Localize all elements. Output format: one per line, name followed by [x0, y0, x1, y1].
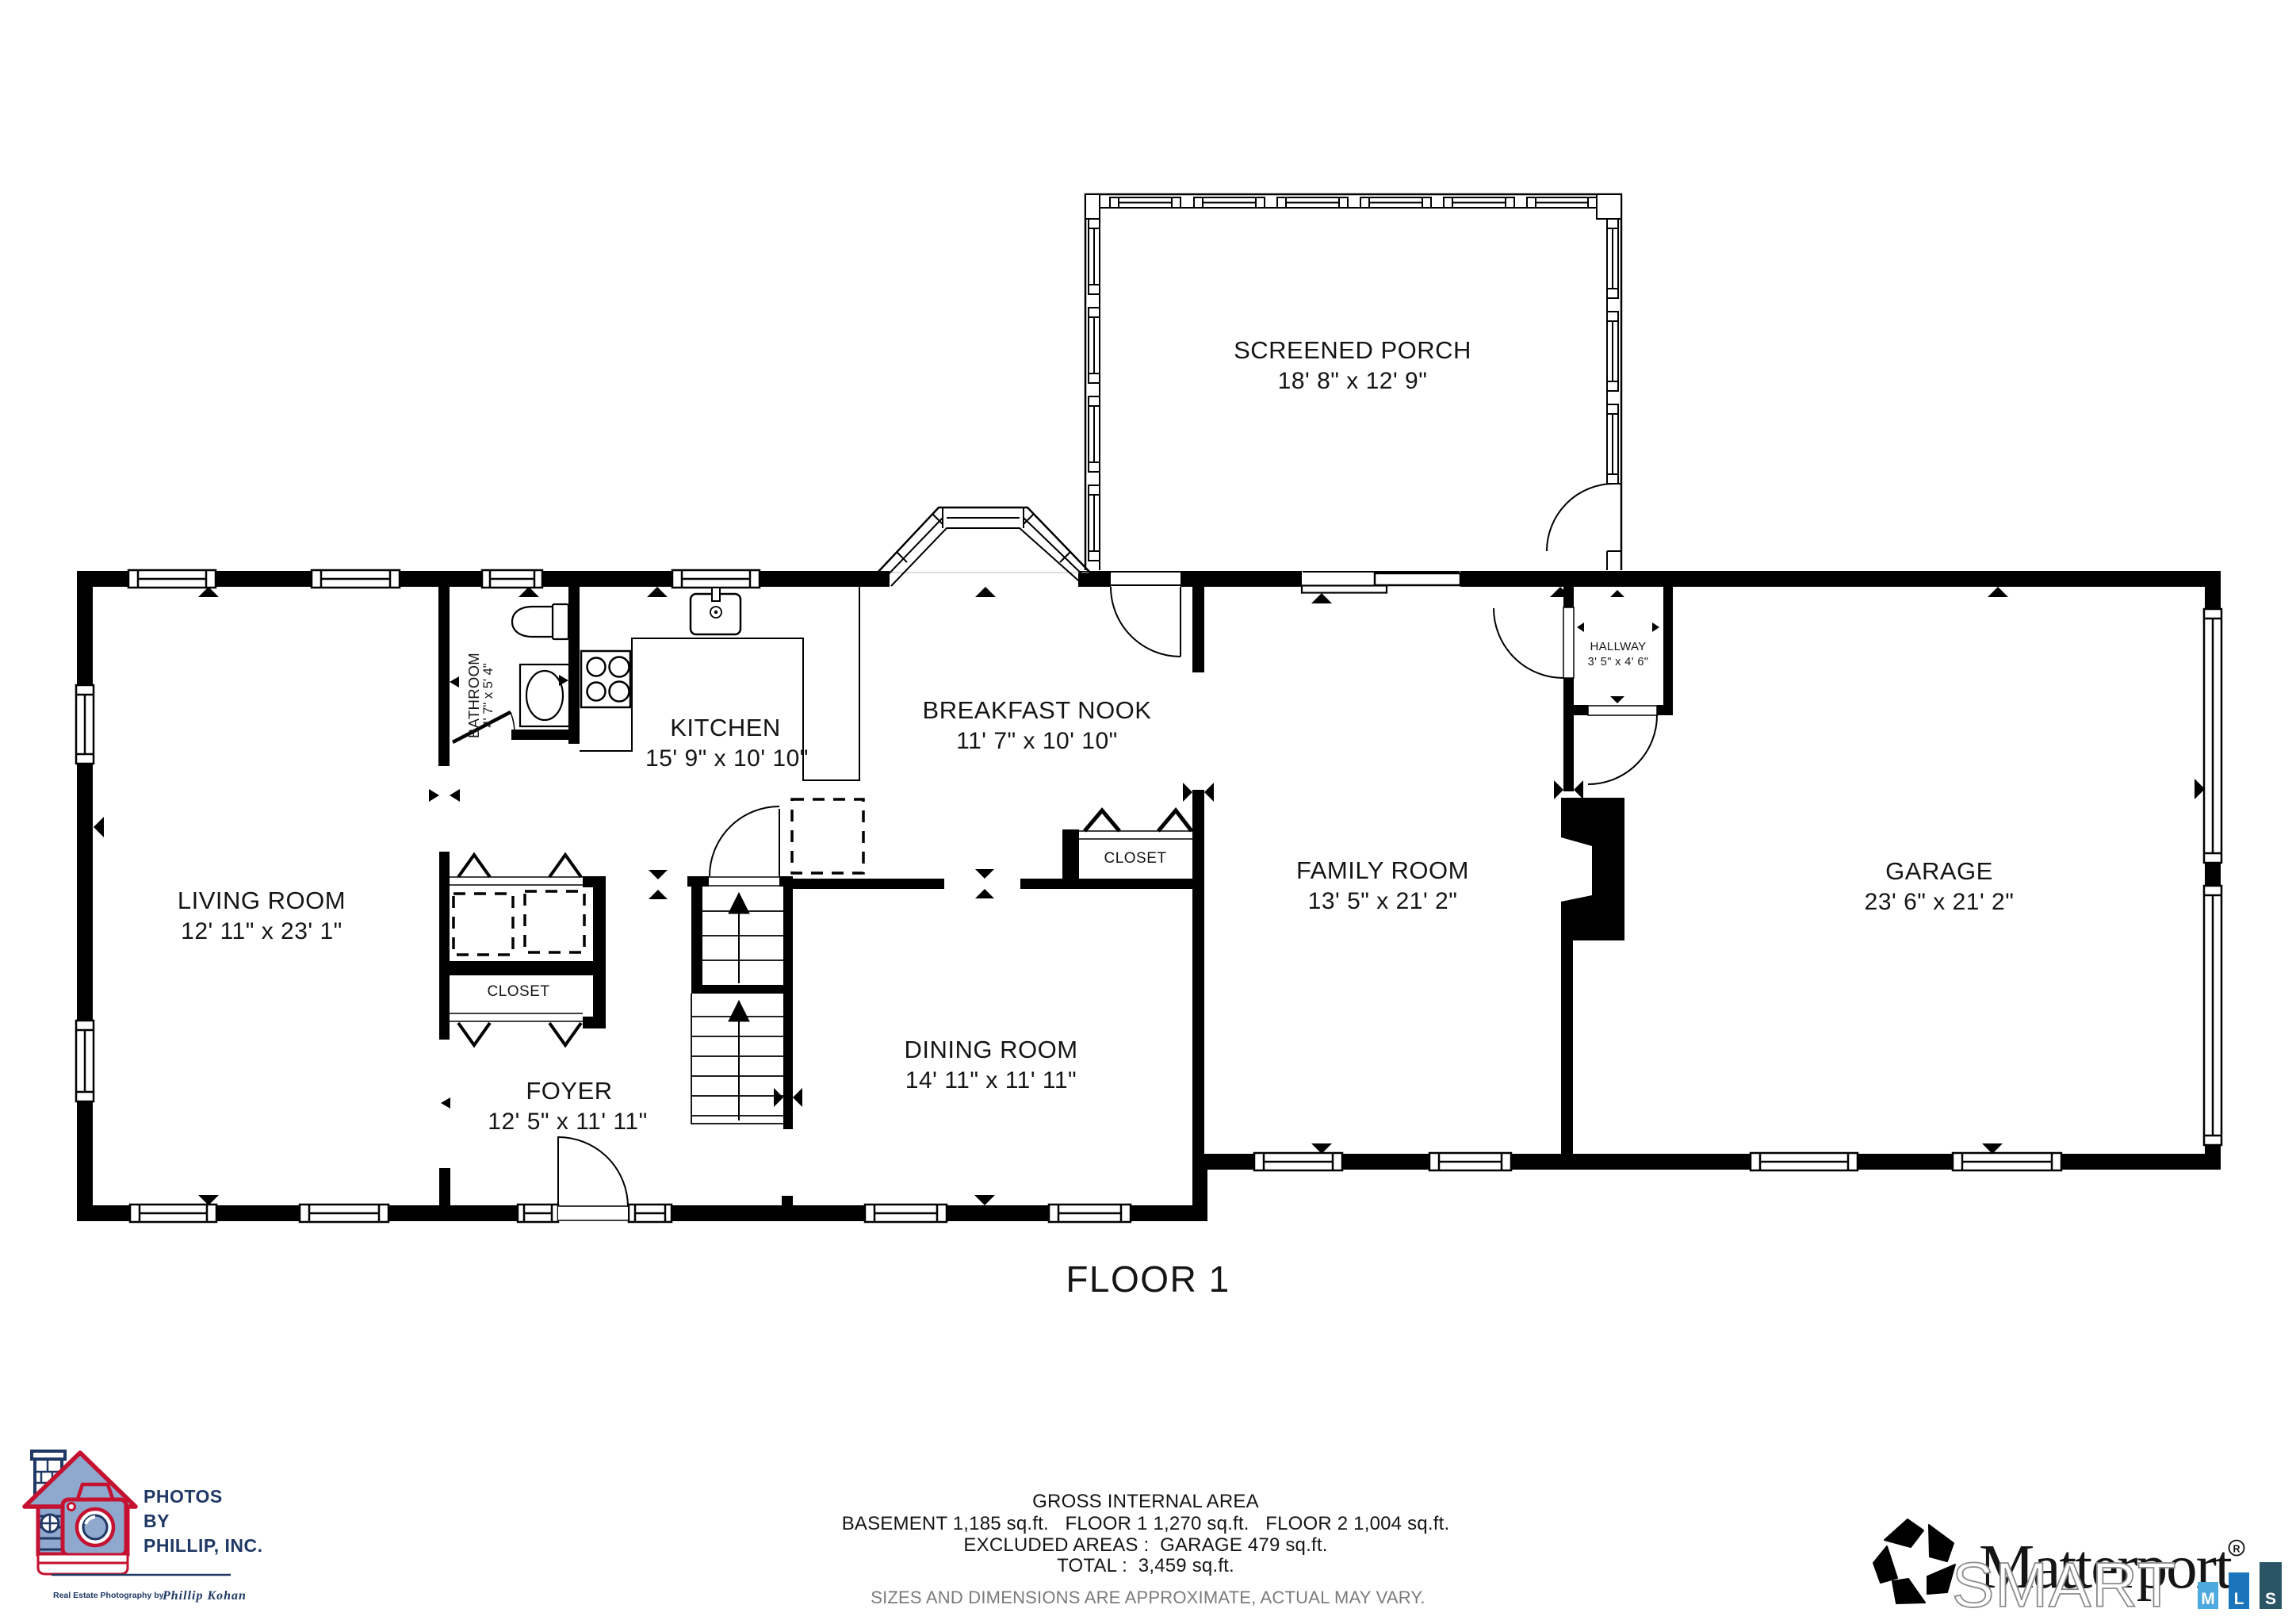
svg-text:4' 7" x 5' 4": 4' 7" x 5' 4": [481, 663, 496, 727]
svg-text:CLOSET: CLOSET: [487, 983, 549, 1000]
svg-text:14' 11" x 11' 11": 14' 11" x 11' 11": [905, 1067, 1077, 1094]
svg-text:11' 7" x 10' 10": 11' 7" x 10' 10": [956, 728, 1118, 754]
svg-text:TOTAL : 3,459 sq.ft.: TOTAL : 3,459 sq.ft.: [1057, 1555, 1234, 1576]
svg-text:GROSS INTERNAL AREA: GROSS INTERNAL AREA: [1032, 1491, 1259, 1512]
svg-text:PHILLIP, INC.: PHILLIP, INC.: [143, 1535, 263, 1556]
svg-text:FAMILY ROOM: FAMILY ROOM: [1296, 856, 1469, 884]
svg-text:DINING ROOM: DINING ROOM: [904, 1036, 1077, 1063]
svg-text:HALLWAY: HALLWAY: [1590, 640, 1646, 653]
svg-text:BASEMENT 1,185 sq.ft. FLOOR: BASEMENT 1,185 sq.ft. FLOOR 1 1,270 sq.f…: [842, 1513, 1450, 1534]
svg-text:FOYER: FOYER: [526, 1077, 612, 1105]
svg-text:12' 11" x 23' 1": 12' 11" x 23' 1": [181, 918, 342, 944]
svg-text:R: R: [2233, 1544, 2240, 1555]
svg-text:3' 5" x 4' 6": 3' 5" x 4' 6": [1588, 656, 1649, 668]
svg-text:Phillip Kohan: Phillip Kohan: [162, 1589, 247, 1603]
svg-text:15' 9" x 10' 10": 15' 9" x 10' 10": [645, 745, 809, 772]
svg-text:CLOSET: CLOSET: [1104, 850, 1166, 867]
svg-text:18' 8" x 12' 9": 18' 8" x 12' 9": [1278, 368, 1428, 394]
svg-text:13' 5" x 21' 2": 13' 5" x 21' 2": [1308, 888, 1458, 914]
svg-text:EXCLUDED AREAS : GARAGE 479 s: EXCLUDED AREAS : GARAGE 479 sq.ft.: [963, 1534, 1327, 1556]
svg-text:SMART: SMART: [1952, 1549, 2177, 1620]
svg-text:FLOOR 1: FLOOR 1: [1066, 1258, 1230, 1300]
svg-text:BATHROOM: BATHROOM: [465, 653, 482, 738]
svg-text:23' 6" x 21' 2": 23' 6" x 21' 2": [1865, 889, 2015, 915]
svg-text:BY: BY: [143, 1511, 170, 1531]
svg-text:S: S: [2265, 1590, 2276, 1608]
svg-text:SIZES AND DIMENSIONS ARE APPRO: SIZES AND DIMENSIONS ARE APPROXIMATE, AC…: [871, 1588, 1425, 1607]
svg-text:GARAGE: GARAGE: [1885, 857, 1993, 885]
svg-text:SCREENED PORCH: SCREENED PORCH: [1234, 336, 1471, 364]
svg-text:KITCHEN: KITCHEN: [670, 714, 781, 741]
svg-text:L: L: [2234, 1590, 2244, 1608]
svg-text:12' 5" x 11' 11": 12' 5" x 11' 11": [488, 1109, 647, 1135]
svg-text:LIVING ROOM: LIVING ROOM: [178, 887, 346, 914]
svg-text:Real Estate Photography by: Real Estate Photography by: [53, 1591, 164, 1600]
svg-text:BREAKFAST NOOK: BREAKFAST NOOK: [923, 696, 1152, 724]
svg-text:PHOTOS: PHOTOS: [143, 1486, 223, 1507]
svg-text:M: M: [2201, 1590, 2215, 1608]
